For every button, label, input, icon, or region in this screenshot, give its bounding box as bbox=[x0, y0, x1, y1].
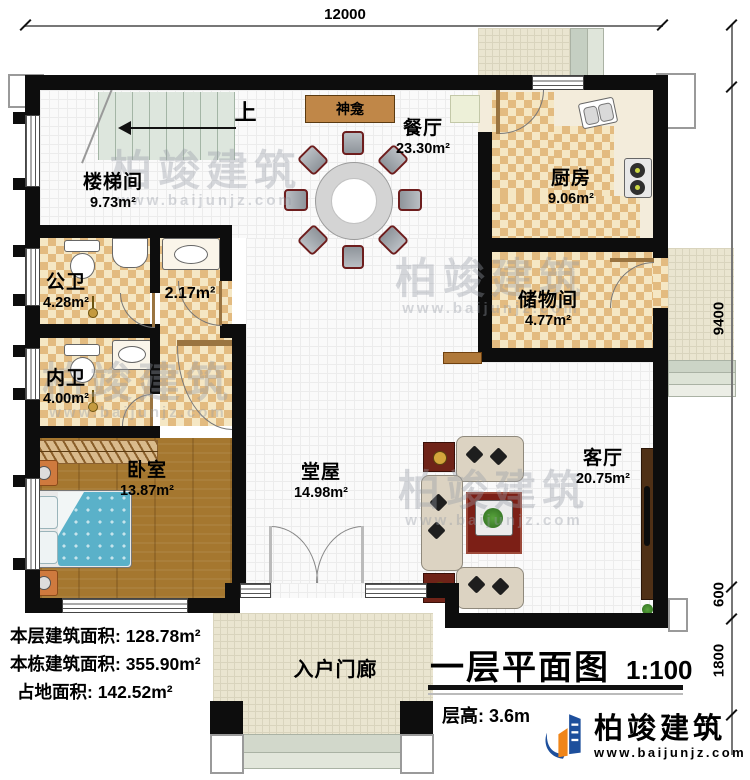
kitchen-window bbox=[532, 75, 584, 90]
sink-basin bbox=[597, 102, 614, 123]
sofa-bottom-section bbox=[456, 567, 524, 609]
wall-bedroom-top bbox=[25, 426, 160, 438]
wall-bath-top bbox=[25, 225, 232, 238]
summary-label: 占地面积: bbox=[17, 682, 93, 702]
room-area: 4.77m² bbox=[493, 313, 603, 330]
shrine-label: 神龛 bbox=[336, 99, 364, 119]
burner-flame bbox=[635, 185, 640, 190]
room-name: 内卫 bbox=[12, 368, 120, 391]
wardrobe-rod bbox=[30, 451, 158, 452]
bed-pillow bbox=[37, 496, 58, 529]
wall-pier bbox=[13, 245, 25, 257]
room-label-kitchen: 厨房 9.06m² bbox=[516, 168, 626, 208]
room-name: 客厅 bbox=[548, 448, 658, 471]
room-area: 13.87m² bbox=[92, 483, 202, 500]
room-area: 9.73m² bbox=[58, 195, 168, 212]
entry-step bbox=[228, 752, 414, 769]
summary-row: 本层建筑面积: 128.78m² bbox=[10, 622, 240, 650]
bedroom-side-window bbox=[25, 478, 40, 570]
room-label-entry-porch: 入户门廊 bbox=[258, 658, 413, 682]
squat-fixture bbox=[112, 238, 148, 268]
room-area: 4.00m² bbox=[12, 391, 120, 408]
column-base bbox=[210, 734, 244, 774]
room-name: 厨房 bbox=[516, 168, 626, 191]
room-name: 楼梯间 bbox=[58, 172, 168, 195]
stove bbox=[624, 158, 652, 198]
dimension-right-middle: 600 bbox=[711, 570, 728, 620]
half-wall-counter bbox=[443, 352, 482, 364]
summary-value: 355.90m² bbox=[126, 654, 201, 674]
storey-height-value: 3.6m bbox=[489, 706, 530, 726]
column-base bbox=[400, 734, 434, 774]
brand-text: 柏竣建筑 www.baijunjz.com bbox=[594, 714, 746, 760]
room-name: 储物间 bbox=[493, 290, 603, 313]
wall-kitchen-storage bbox=[478, 238, 668, 252]
room-label-inner-bath: 内卫 4.00m² bbox=[12, 368, 120, 408]
bedroom-front-window bbox=[62, 598, 188, 613]
dimension-top-label: 12000 bbox=[300, 6, 390, 23]
storey-height: 层高: 3.6m bbox=[442, 702, 530, 731]
room-label-hall: 堂屋 14.98m² bbox=[266, 462, 376, 502]
plan-title-block: 一层平面图 1:100 bbox=[430, 640, 693, 689]
room-area: 4.28m² bbox=[12, 295, 120, 312]
room-area: 2.17m² bbox=[135, 284, 245, 303]
bed-pillow bbox=[37, 531, 58, 564]
wall-living-bottom bbox=[445, 613, 668, 628]
wall-pier bbox=[13, 558, 25, 570]
exterior-pier bbox=[668, 598, 688, 632]
room-label-dining: 餐厅 23.30m² bbox=[368, 118, 478, 158]
summary-label: 本层建筑面积: bbox=[10, 626, 121, 646]
summary-value: 142.52m² bbox=[98, 682, 173, 702]
dimension-line-right bbox=[731, 25, 733, 755]
summary-row: 占地面积: 142.52m² bbox=[10, 678, 240, 706]
washbasin bbox=[174, 245, 208, 264]
summary-label: 本栋建筑面积: bbox=[10, 654, 121, 674]
stairs-arrow-head bbox=[118, 121, 131, 135]
entry-door-leaf bbox=[269, 526, 272, 583]
area-summary: 本层建筑面积: 128.78m² 本栋建筑面积: 355.90m² 占地面积: … bbox=[10, 622, 240, 706]
tv bbox=[644, 486, 650, 546]
wall-pier bbox=[13, 112, 25, 124]
up-text: 上 bbox=[234, 100, 257, 125]
kitchen-door-gap bbox=[478, 90, 492, 132]
room-label-wash-area: 2.17m² bbox=[135, 284, 245, 303]
toilet-tank bbox=[64, 240, 100, 252]
toilet-tank bbox=[64, 344, 100, 356]
summary-value: 128.78m² bbox=[126, 626, 201, 646]
title-underline bbox=[428, 685, 683, 690]
room-name: 入户门廊 bbox=[258, 658, 413, 682]
room-name: 公卫 bbox=[12, 272, 120, 295]
wall-pier bbox=[13, 475, 25, 487]
room-area: 9.06m² bbox=[516, 191, 626, 208]
wall-wash-east bbox=[220, 225, 232, 281]
room-label-living: 客厅 20.75m² bbox=[548, 448, 658, 488]
room-label-storage: 储物间 4.77m² bbox=[493, 290, 603, 330]
entry-door-gap bbox=[271, 583, 365, 598]
stairs-up-label: 上 bbox=[228, 100, 264, 126]
table-ornament bbox=[433, 451, 447, 465]
brand-block: 柏竣建筑 www.baijunjz.com bbox=[540, 706, 746, 769]
porch-column bbox=[400, 701, 433, 734]
storage-door-gap bbox=[653, 258, 668, 308]
summary-row: 本栋建筑面积: 355.90m² bbox=[10, 650, 240, 678]
room-name: 卧室 bbox=[92, 460, 202, 483]
brand-logo-icon bbox=[540, 706, 586, 769]
brand-name: 柏竣建筑 bbox=[594, 714, 746, 746]
entry-door-leaf bbox=[361, 526, 364, 583]
wall-bath-middle bbox=[25, 324, 160, 338]
plan-title: 一层平面图 bbox=[430, 640, 610, 689]
brand-website: www.baijunjz.com bbox=[594, 746, 746, 760]
dining-table-top bbox=[331, 178, 377, 224]
dining-chair bbox=[342, 245, 364, 269]
room-label-bedroom: 卧室 13.87m² bbox=[92, 460, 202, 500]
dimension-line-top bbox=[25, 25, 663, 27]
floor-plan-canvas: 上 神龛 bbox=[0, 0, 750, 780]
room-name: 餐厅 bbox=[368, 118, 478, 141]
wall-storage-bottom bbox=[478, 348, 668, 362]
entry-step bbox=[236, 734, 406, 754]
dining-chair bbox=[342, 131, 364, 155]
dimension-right-upper: 9400 bbox=[711, 289, 728, 349]
wall-kitchen-west bbox=[478, 132, 492, 238]
stairwell-window bbox=[25, 115, 40, 187]
room-label-public-bath: 公卫 4.28m² bbox=[12, 272, 120, 312]
wall-pier bbox=[13, 345, 25, 357]
plan-scale: 1:100 bbox=[626, 655, 693, 686]
wall-pier bbox=[13, 178, 25, 190]
room-area: 20.75m² bbox=[548, 471, 658, 488]
watermark-url: www.baijunjz.com bbox=[398, 512, 590, 529]
room-name: 堂屋 bbox=[266, 462, 376, 485]
wall-hall-west bbox=[232, 324, 246, 598]
title-underline-thin bbox=[428, 693, 683, 695]
dimension-right-lower: 1800 bbox=[711, 631, 728, 691]
burner-flame bbox=[635, 168, 640, 173]
stairs-direction-line bbox=[130, 127, 236, 129]
side-porch-step bbox=[668, 384, 736, 397]
hall-front-window bbox=[240, 583, 271, 598]
room-label-stairwell: 楼梯间 9.73m² bbox=[58, 172, 168, 212]
storey-height-label: 层高: bbox=[442, 706, 484, 726]
wall-right-upper bbox=[653, 75, 668, 258]
hall-front-window bbox=[365, 583, 427, 598]
room-area: 23.30m² bbox=[368, 141, 478, 158]
room-area: 14.98m² bbox=[266, 485, 376, 502]
dining-chair bbox=[398, 189, 422, 211]
